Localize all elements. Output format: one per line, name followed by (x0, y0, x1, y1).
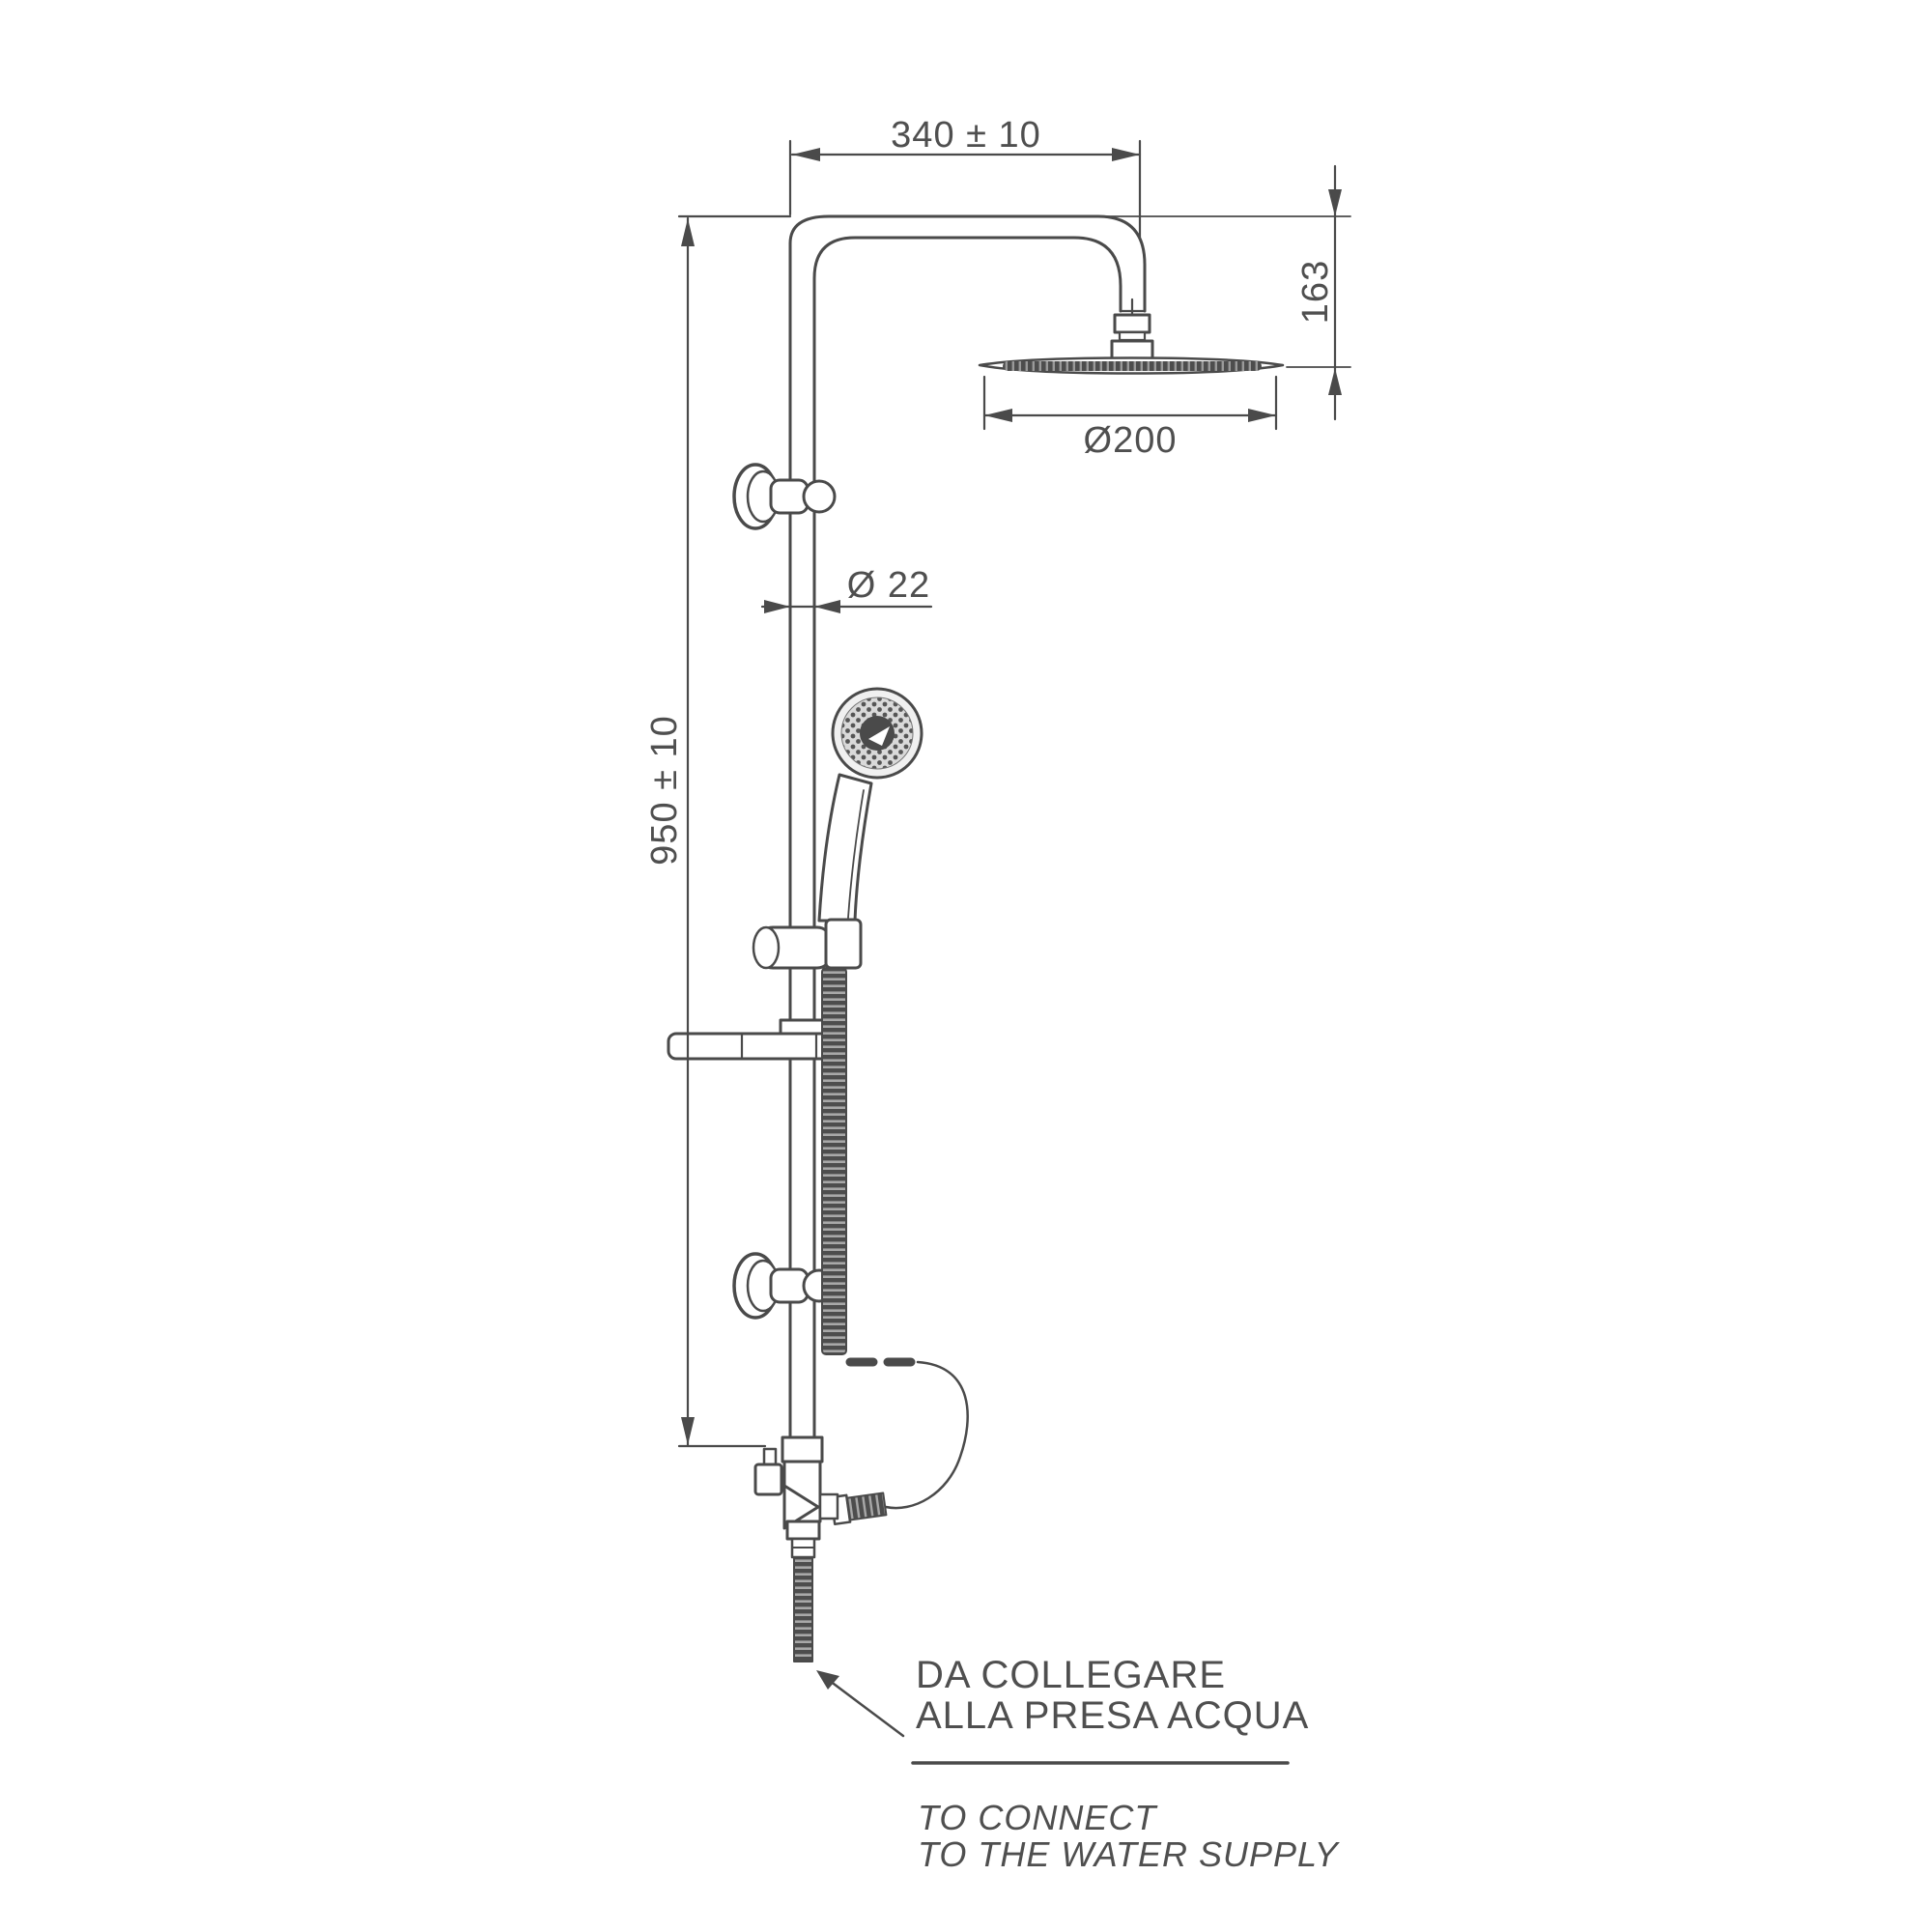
dim-head-drop-label: 163 (1295, 260, 1336, 324)
inlet-nut (787, 1521, 819, 1539)
shower-column-technical-drawing: 340 ± 10 163 Ø200 Ø 22 950 ± 10 DA COLLE… (0, 0, 1932, 1932)
note-english-line1: TO CONNECT (918, 1798, 1158, 1837)
rain-head-nozzle-band (1003, 361, 1262, 371)
note-italian-line1: DA COLLEGARE (916, 1654, 1226, 1696)
hose-coiled-section (822, 968, 846, 1354)
rain-shower-head (980, 358, 1283, 374)
bracket-knob (804, 481, 835, 512)
note-english-line2: TO THE WATER SUPPLY (918, 1834, 1341, 1874)
diverter-handle (755, 1464, 781, 1494)
dim-arm-reach-label: 340 ± 10 (891, 115, 1041, 156)
connector-nut (1115, 315, 1150, 332)
background (0, 0, 1932, 1932)
diverter-sleeve (782, 1437, 822, 1462)
hose-fitting-thread (847, 1492, 887, 1520)
hand-shower-holder (753, 920, 861, 968)
hand-shower-center-disc (860, 716, 895, 751)
diverter-outlet (820, 1494, 838, 1519)
bracket-arm (771, 480, 808, 513)
dim-pipe-diameter-label: Ø 22 (847, 565, 930, 606)
dim-column-height-label: 950 ± 10 (644, 715, 685, 866)
note-italian-line2: ALLA PRESA ACQUA (916, 1694, 1309, 1737)
holder-socket (826, 920, 861, 968)
bracket-arm (771, 1269, 808, 1302)
shelf-bar (668, 1034, 831, 1059)
dim-head-diameter-label: Ø200 (1084, 420, 1178, 461)
water-supply-threaded-tail (794, 1557, 812, 1662)
connector-ring (1120, 332, 1145, 340)
holder-end-cap (753, 927, 779, 968)
